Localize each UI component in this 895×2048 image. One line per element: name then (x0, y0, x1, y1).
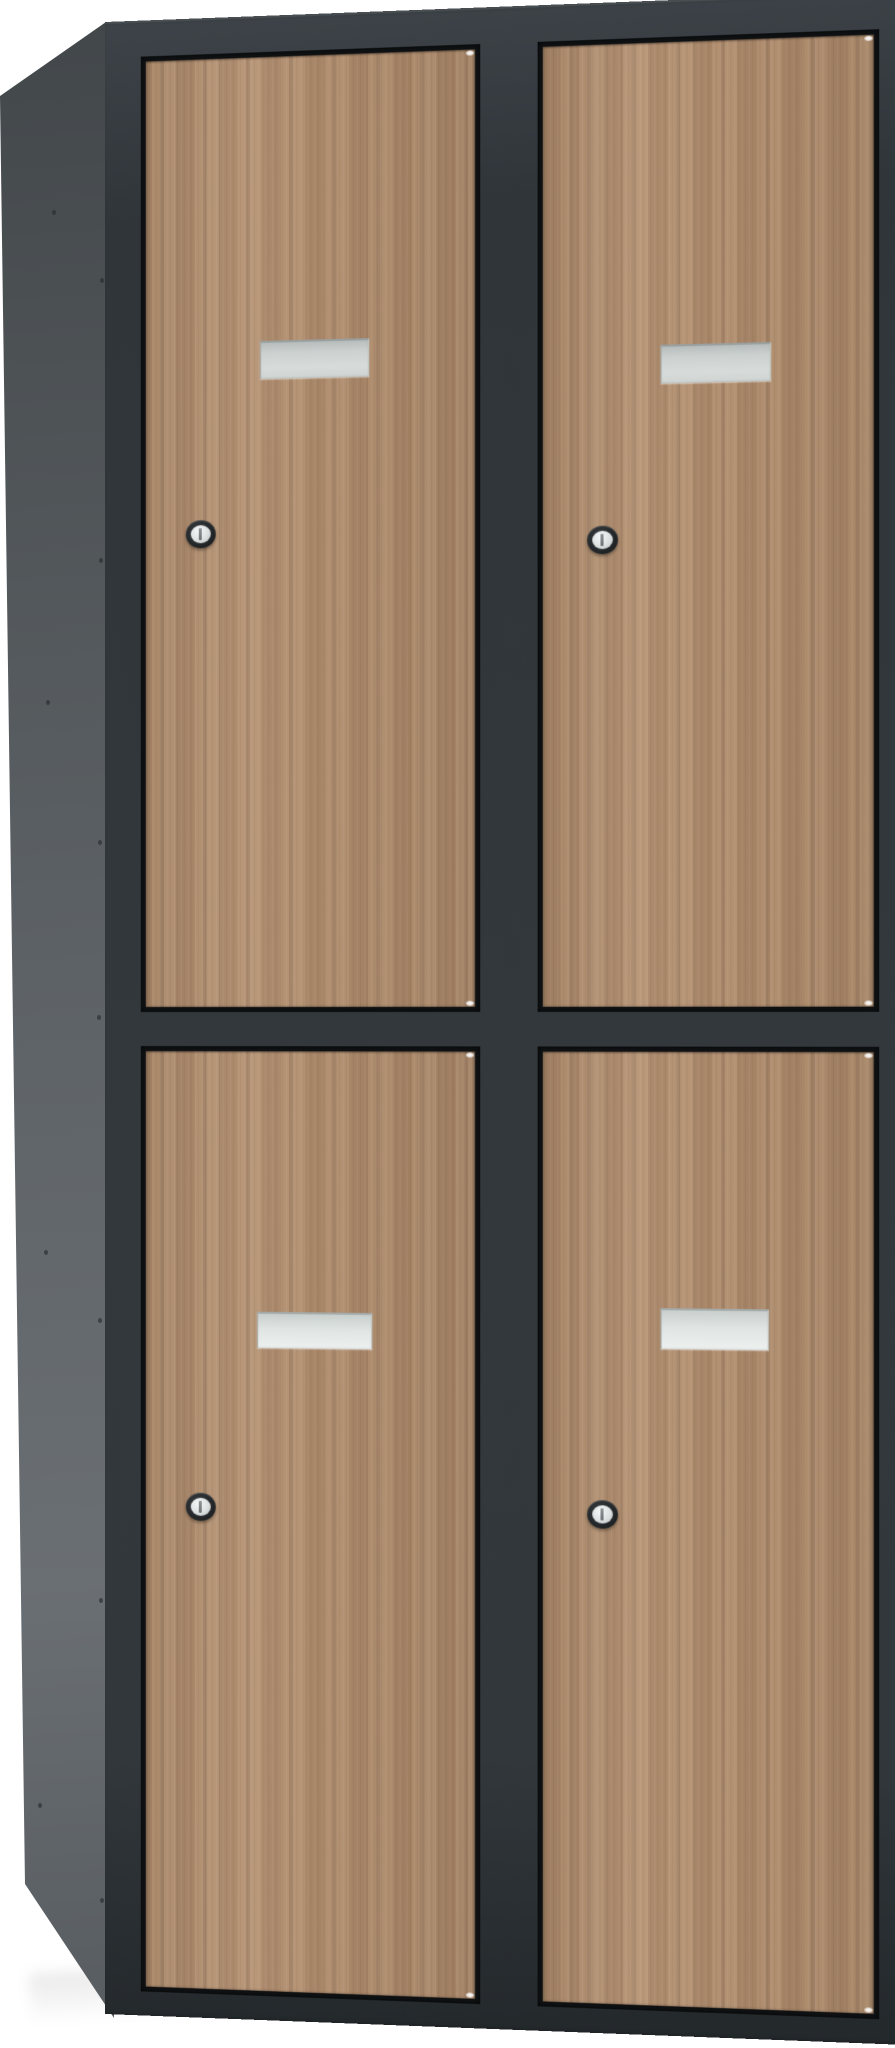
rivet-hole (44, 1250, 48, 1255)
locker-compartment-top-right (538, 29, 880, 1012)
rivet-hole (97, 1015, 101, 1020)
rivet-hole (98, 840, 102, 845)
rivet-hole (99, 558, 103, 563)
name-plate (257, 1312, 372, 1350)
lock-cylinder (191, 525, 211, 543)
keyway-slot (600, 534, 603, 546)
side-panel (0, 18, 118, 2023)
rivet-hole (52, 210, 56, 215)
keyway-slot (600, 1508, 603, 1520)
door-top-right (543, 35, 874, 1007)
locker-compartment-bottom-left (141, 1046, 480, 2004)
rivet-hole (38, 1803, 42, 1808)
lock-cylinder (592, 1505, 613, 1524)
rivet-hole (98, 1318, 102, 1323)
rivet-hole (46, 700, 50, 705)
keyway-slot (199, 528, 202, 540)
door-bottom-left (146, 1051, 475, 1999)
locker-cabinet-photo (0, 0, 895, 2048)
name-plate (661, 1308, 769, 1350)
cylinder-lock (587, 525, 618, 554)
keyway-slot (199, 1501, 202, 1513)
cylinder-lock (186, 520, 216, 549)
cylinder-lock (186, 1492, 216, 1521)
cylinder-lock (587, 1500, 618, 1529)
cabinet-front-frame (105, 0, 895, 2045)
door-bottom-right (543, 1052, 874, 2014)
name-plate (661, 342, 771, 384)
lock-cylinder (191, 1498, 211, 1516)
rivet-hole (100, 1898, 104, 1903)
lock-cylinder (592, 531, 613, 550)
rivet-hole (99, 1598, 103, 1603)
locker-compartment-top-left (141, 44, 480, 1012)
rivet-hole (100, 278, 104, 283)
name-plate (260, 338, 369, 379)
locker-compartment-bottom-right (538, 1046, 880, 2019)
door-top-left (146, 49, 475, 1007)
